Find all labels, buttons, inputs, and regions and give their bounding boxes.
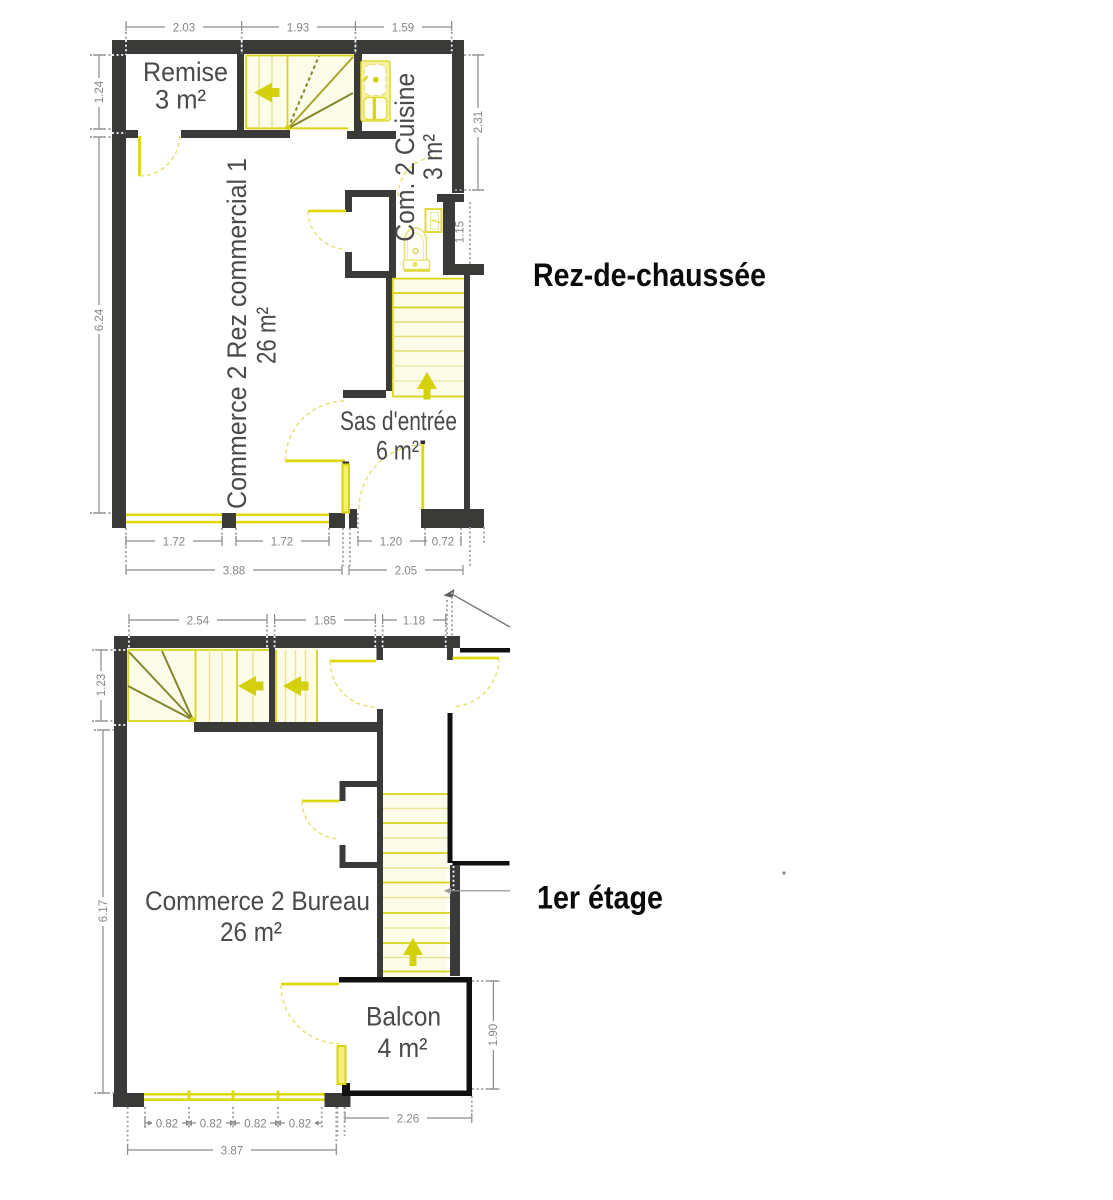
svg-text:1.24: 1.24 — [94, 80, 106, 103]
svg-text:1.18: 1.18 — [403, 616, 425, 628]
svg-text:1er étage: 1er étage — [537, 880, 663, 916]
svg-text:4 m²: 4 m² — [378, 1033, 428, 1063]
svg-text:3.87: 3.87 — [221, 1146, 243, 1158]
svg-text:Com. 2 Cuisine: Com. 2 Cuisine — [390, 73, 420, 242]
svg-text:Balcon: Balcon — [366, 1002, 441, 1032]
svg-text:1.23: 1.23 — [96, 674, 108, 696]
svg-text:1.90: 1.90 — [488, 1024, 500, 1046]
svg-text:Commerce 2 Bureau: Commerce 2 Bureau — [145, 886, 370, 916]
svg-text:1.72: 1.72 — [163, 537, 185, 549]
svg-text:0.82: 0.82 — [200, 1119, 222, 1131]
svg-text:1.59: 1.59 — [392, 23, 414, 35]
svg-text:3 m²: 3 m² — [418, 134, 448, 180]
svg-text:26 m²: 26 m² — [252, 307, 282, 364]
svg-text:2.31: 2.31 — [473, 111, 485, 133]
svg-text:Sas d'entrée: Sas d'entrée — [340, 406, 457, 436]
svg-text:0.82: 0.82 — [289, 1119, 311, 1131]
svg-text:1.20: 1.20 — [380, 537, 402, 549]
svg-text:1.85: 1.85 — [314, 616, 336, 628]
svg-text:6.24: 6.24 — [94, 308, 106, 331]
svg-text:Commerce 2 Rez commercial 1: Commerce 2 Rez commercial 1 — [222, 158, 252, 509]
svg-text:3.88: 3.88 — [223, 566, 245, 578]
svg-text:1.15: 1.15 — [455, 221, 467, 243]
svg-text:6.17: 6.17 — [98, 900, 110, 922]
svg-text:0.82: 0.82 — [156, 1119, 178, 1131]
svg-text:2.54: 2.54 — [187, 616, 210, 628]
svg-text:2.26: 2.26 — [397, 1114, 419, 1126]
svg-text:2.03: 2.03 — [173, 23, 195, 35]
svg-text:3 m²: 3 m² — [155, 85, 206, 115]
svg-text:Remise: Remise — [143, 57, 228, 87]
svg-text:6 m²: 6 m² — [376, 436, 419, 466]
svg-text:Rez-de-chaussée: Rez-de-chaussée — [533, 257, 766, 293]
svg-text:1.93: 1.93 — [287, 23, 309, 35]
svg-text:0.82: 0.82 — [244, 1119, 266, 1131]
svg-text:1.72: 1.72 — [271, 537, 293, 549]
svg-text:0.72: 0.72 — [432, 537, 454, 549]
svg-text:2.05: 2.05 — [395, 566, 417, 578]
svg-text:26 m²: 26 m² — [220, 917, 282, 947]
